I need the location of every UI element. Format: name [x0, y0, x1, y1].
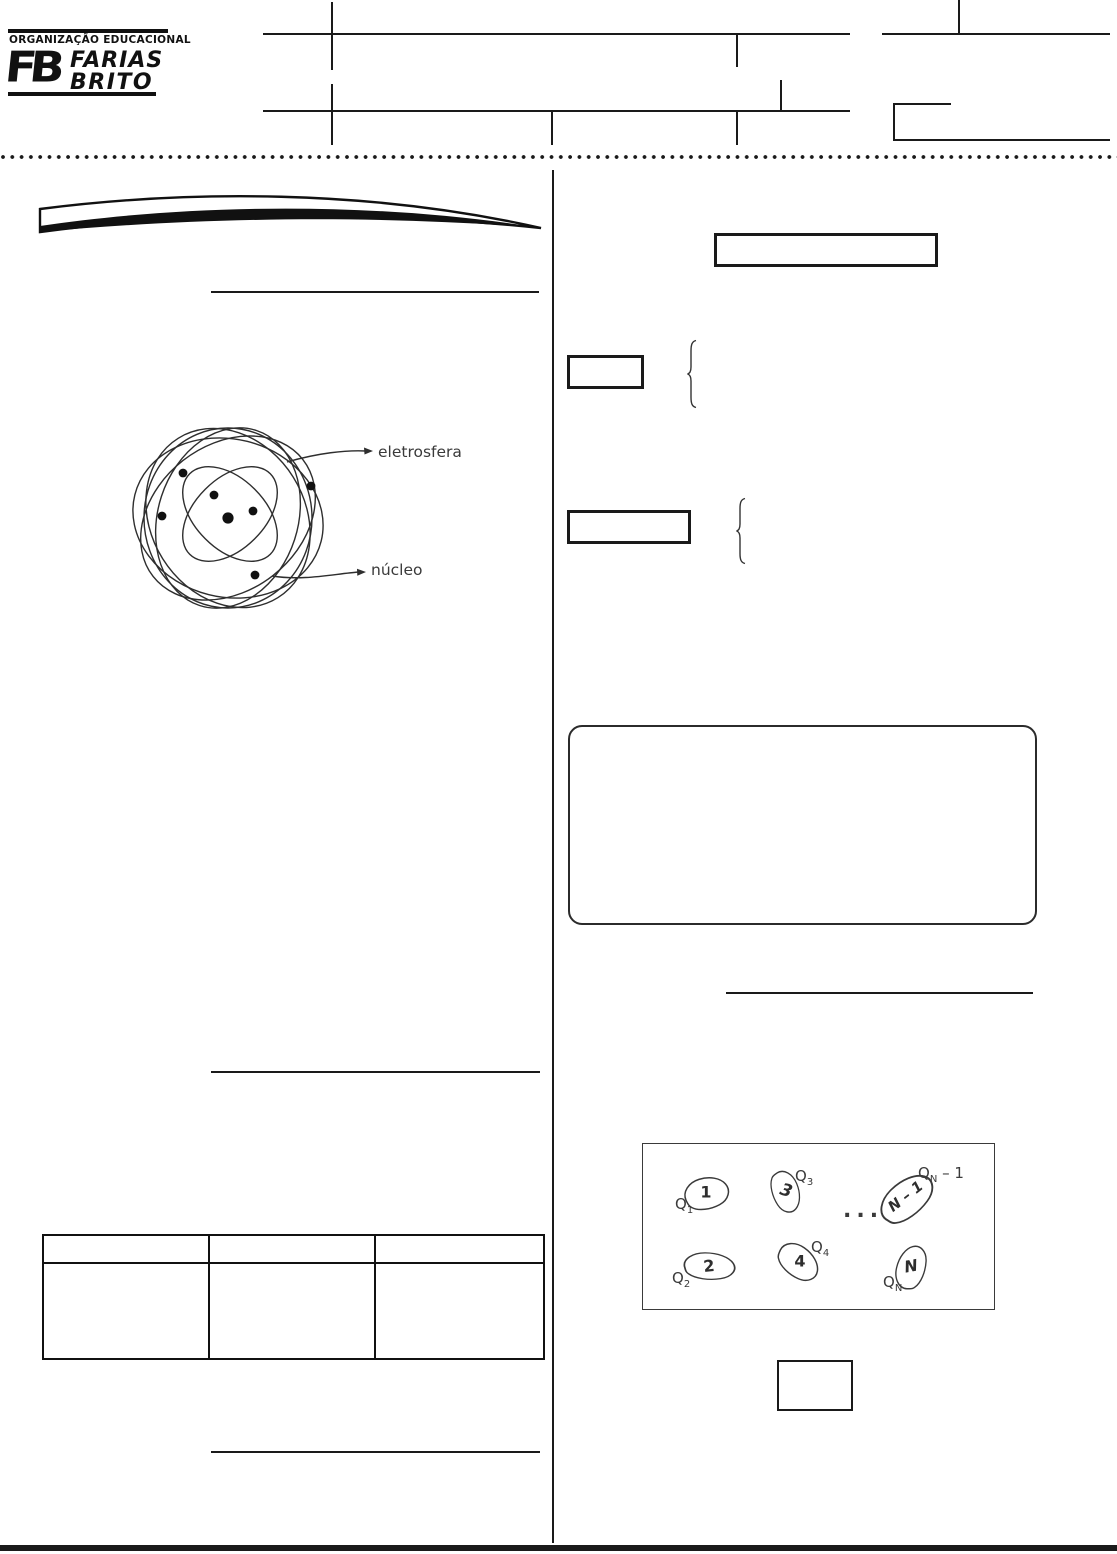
answer-box-title [714, 233, 938, 267]
form-line-top-right [882, 33, 1110, 35]
charge-number-4: 4 [794, 1252, 805, 1271]
q-prefix: Q [795, 1167, 807, 1185]
electrosphere-label: eletrosfera [378, 443, 462, 461]
charge-label-q4: Q4 [811, 1238, 829, 1259]
form-bracket-vertical [893, 103, 895, 141]
form-line-top-left [263, 33, 850, 35]
curly-brace-1 [685, 339, 699, 409]
left-heading-rule-3 [211, 1451, 540, 1453]
form-tick-7 [958, 0, 960, 35]
logo-top-rule [8, 29, 168, 33]
q-prefix: Q [675, 1195, 687, 1213]
answer-box-small [777, 1360, 853, 1411]
table-header-cell [376, 1236, 543, 1264]
q-subscript: N [895, 1283, 902, 1294]
electron-dots [158, 469, 316, 580]
right-heading-rule [726, 992, 1033, 994]
q-prefix: Q [883, 1273, 895, 1291]
form-tick-4 [736, 112, 738, 145]
form-tick-5 [551, 112, 553, 145]
table-body-cell [376, 1264, 543, 1358]
fb-monogram: FB [3, 42, 61, 92]
q-subscript: 2 [684, 1279, 690, 1290]
q-subscript: 4 [823, 1248, 829, 1259]
charge-label-q1: Q1 [675, 1195, 693, 1216]
dotted-separator [0, 154, 1117, 160]
form-line-bottom [263, 110, 850, 112]
logo-bottom-rule [8, 92, 156, 96]
q-prefix: Q [811, 1238, 823, 1256]
q-subscript: 1 [687, 1205, 693, 1216]
curly-brace-2 [734, 497, 748, 565]
electrosphere-arrow [287, 451, 366, 462]
blank-table [42, 1234, 545, 1360]
q-prefix: Q [672, 1269, 684, 1287]
atom-diagram [118, 412, 380, 634]
table-body-cell [44, 1264, 210, 1358]
charge-number-1: 1 [700, 1183, 711, 1202]
answer-box-2 [567, 510, 691, 544]
answer-box-1 [567, 355, 644, 389]
q-suffix: – 1 [937, 1164, 964, 1182]
footer-rule [0, 1545, 1117, 1551]
q-prefix: Q [918, 1164, 930, 1182]
form-tick-2 [331, 84, 333, 145]
charge-label-q2: Q2 [672, 1269, 690, 1290]
q-subscript: 3 [807, 1177, 813, 1188]
charge-number-2: 2 [702, 1256, 715, 1276]
nucleus-label: núcleo [371, 561, 423, 579]
form-bracket-bottom [893, 139, 1110, 141]
charge-label-q3: Q3 [795, 1167, 813, 1188]
form-bracket-top [893, 103, 951, 105]
left-heading-rule-1 [211, 291, 539, 293]
header-swoosh-graphic [38, 195, 545, 241]
nucleus-dot [222, 512, 233, 523]
table-body-cell [210, 1264, 376, 1358]
left-heading-rule-2 [211, 1071, 540, 1073]
charge-label-qn: QN [883, 1273, 902, 1294]
worksheet-page: ORGANIZAÇÃO EDUCACIONAL FB FARIAS BRITO [0, 0, 1117, 1554]
form-tick-3 [736, 35, 738, 67]
form-tick-1 [331, 2, 333, 70]
column-divider [552, 170, 554, 1543]
table-header-cell [210, 1236, 376, 1264]
ellipsis-dots: ... [843, 1208, 883, 1214]
table-header-cell [44, 1236, 210, 1264]
form-tick-6 [780, 80, 782, 112]
nucleus-arrow [272, 572, 359, 578]
charge-label-qn-minus-1: QN – 1 [918, 1164, 964, 1185]
note-rounded-box [568, 725, 1037, 925]
